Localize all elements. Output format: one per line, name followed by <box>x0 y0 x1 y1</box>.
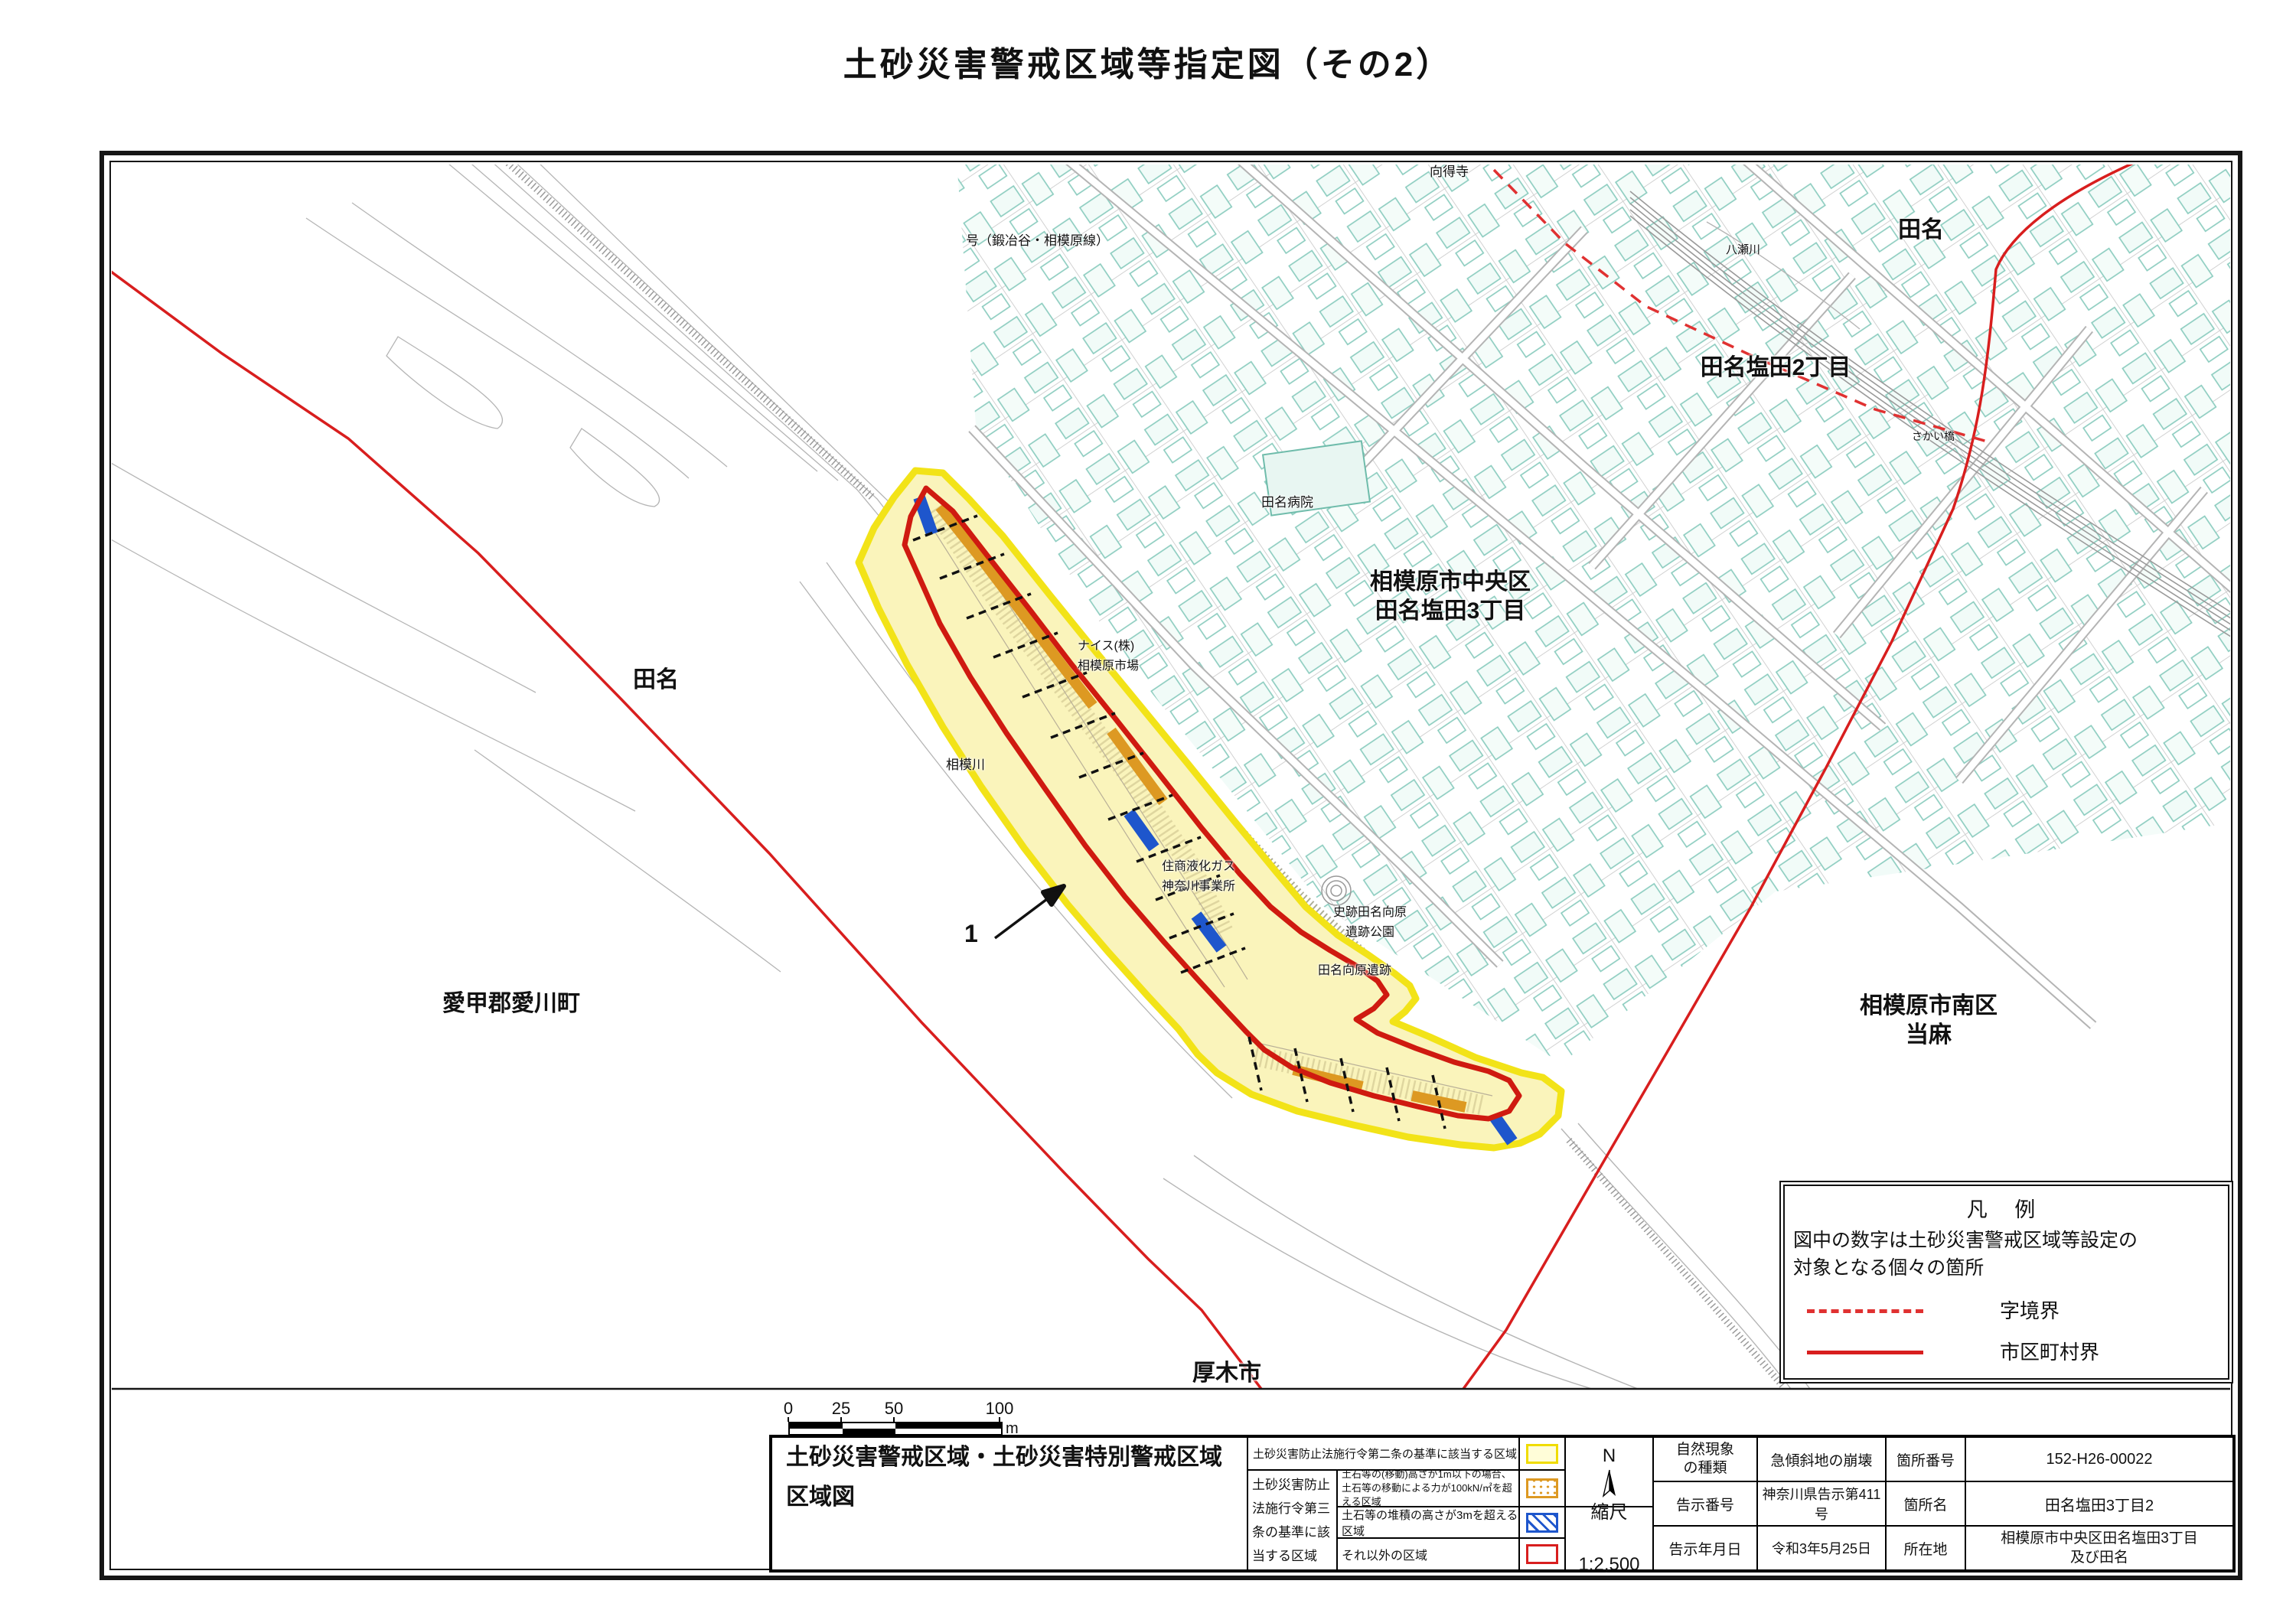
spot-no-label-cell: 箇所番号 <box>1886 1437 1965 1481</box>
notice-no-value-cell: 神奈川県告示第411号 <box>1757 1481 1886 1526</box>
spot-name-label-cell: 箇所名 <box>1886 1481 1965 1526</box>
scale-value: 1:2,500 <box>1578 1554 1639 1575</box>
special-other-swatch-icon <box>1526 1544 1558 1564</box>
phenomenon-value-cell: 急傾斜地の崩壊 <box>1757 1437 1886 1481</box>
legend-box: 凡 例 図中の数字は土砂災害警戒区域等設定の 対象となる個々の箇所 字境界 市区… <box>1779 1181 2233 1383</box>
warning-zone-swatch-icon <box>1526 1444 1558 1464</box>
scale-cell: 縮尺 1:2,500 <box>1565 1507 1653 1570</box>
article2-cell: 土砂災害防止法施行令第二条の基準に該当する区域 <box>1247 1437 1519 1470</box>
spot-name-value-cell: 田名塩田3丁目2 <box>1965 1481 2233 1526</box>
notice-date-value-cell: 令和3年5月25日 <box>1757 1526 1886 1570</box>
scale-bar: 0 25 50 100 m <box>782 1399 1035 1437</box>
label-tana-shioda-2: 田名塩田2丁目 <box>1701 354 1851 383</box>
article3-cell: 土砂災害防止法施行令第三条の基準に該当する区域 <box>1247 1470 1337 1570</box>
swatch-cell-3 <box>1519 1507 1565 1538</box>
label-nice-market: ナイス(株) 相模原市場 <box>1078 637 1139 676</box>
label-mukutokuji: 向得寺 <box>1430 161 1469 180</box>
label-route-name: 号（鍛冶谷・相模原線） <box>966 230 1109 249</box>
legend-title: 凡 例 <box>1781 1193 2232 1223</box>
label-tana-northeast: 田名 <box>1898 216 1944 245</box>
article3-move-cell: 土石等の(移動)高さが1m以下の場合、 土石等の移動による力が100kN/㎡を超… <box>1337 1470 1519 1507</box>
swatch-cell-1 <box>1519 1437 1565 1470</box>
label-sagami-river: 相模川 <box>946 754 985 773</box>
hazard-map-sheet: 土砂災害警戒区域等指定図（その2） <box>0 0 2296 1623</box>
scale-bar-graphic <box>788 1422 1003 1436</box>
article3-other-cell: それ以外の区域 <box>1337 1538 1519 1570</box>
notice-no-label-cell: 告示番号 <box>1653 1481 1757 1526</box>
scale-tick-25: 25 <box>832 1399 850 1419</box>
label-tana-west: 田名 <box>633 666 679 695</box>
swatch-cell-4 <box>1519 1538 1565 1570</box>
scale-tick-0: 0 <box>784 1399 793 1419</box>
slope-hatch-nw <box>505 160 872 497</box>
label-minami-ward: 相模原市南区 当麻 <box>1860 992 1998 1050</box>
red-solid-line-icon <box>1807 1351 1923 1354</box>
spot-1-arrow <box>995 886 1064 938</box>
sheet-title-cell: 土砂災害警戒区域・土砂災害特別警戒区域 区域図 <box>771 1437 1247 1570</box>
legend-item-aza-boundary: 字境界 <box>1781 1295 2232 1326</box>
location-label-cell: 所在地 <box>1886 1526 1965 1570</box>
label-atsugi-city: 厚木市 <box>1192 1359 1261 1388</box>
label-sakai-bridge: さかい橋 <box>1912 429 1955 444</box>
spot-number-1[interactable]: 1 <box>964 920 978 948</box>
label-iseki: 田名向原遺跡 <box>1318 961 1391 981</box>
north-arrow-icon <box>1601 1468 1618 1499</box>
label-yasegawa-river: 八瀬川 <box>1726 241 1760 257</box>
swatch-cell-2 <box>1519 1470 1565 1507</box>
label-shiseki-park: 史跡田名向原 遺跡公園 <box>1333 903 1407 943</box>
legend-item-municipal-boundary: 市区町村界 <box>1781 1337 2232 1367</box>
red-dashed-line-icon <box>1807 1309 1923 1313</box>
phenomenon-label-cell: 自然現象 の種類 <box>1653 1437 1757 1481</box>
north-cell: N <box>1565 1437 1653 1507</box>
notice-date-label-cell: 告示年月日 <box>1653 1526 1757 1570</box>
label-tana-hospital: 田名病院 <box>1261 491 1313 510</box>
label-chuo-ward: 相模原市中央区 田名塩田3丁目 <box>1370 568 1531 626</box>
location-value-cell: 相模原市中央区田名塩田3丁目 及び田名 <box>1965 1526 2233 1570</box>
legend-note: 図中の数字は土砂災害警戒区域等設定の 対象となる個々の箇所 <box>1793 1227 2138 1282</box>
label-aikawa-town: 愛甲郡愛川町 <box>442 989 580 1018</box>
slope-hatch-se <box>1569 1140 1783 1387</box>
scale-tick-50: 50 <box>885 1399 903 1419</box>
special-move-swatch-icon <box>1526 1478 1558 1498</box>
special-deposit-swatch-icon <box>1526 1513 1558 1533</box>
article3-deposit-cell: 土石等の堆積の高さが3mを超える区域 <box>1337 1507 1519 1538</box>
label-sumisho-gas: 住商液化ガス 神奈川事業所 <box>1162 857 1235 897</box>
scale-tick-100: 100 <box>986 1399 1014 1419</box>
spot-no-value-cell: 152-H26-00022 <box>1965 1437 2233 1481</box>
